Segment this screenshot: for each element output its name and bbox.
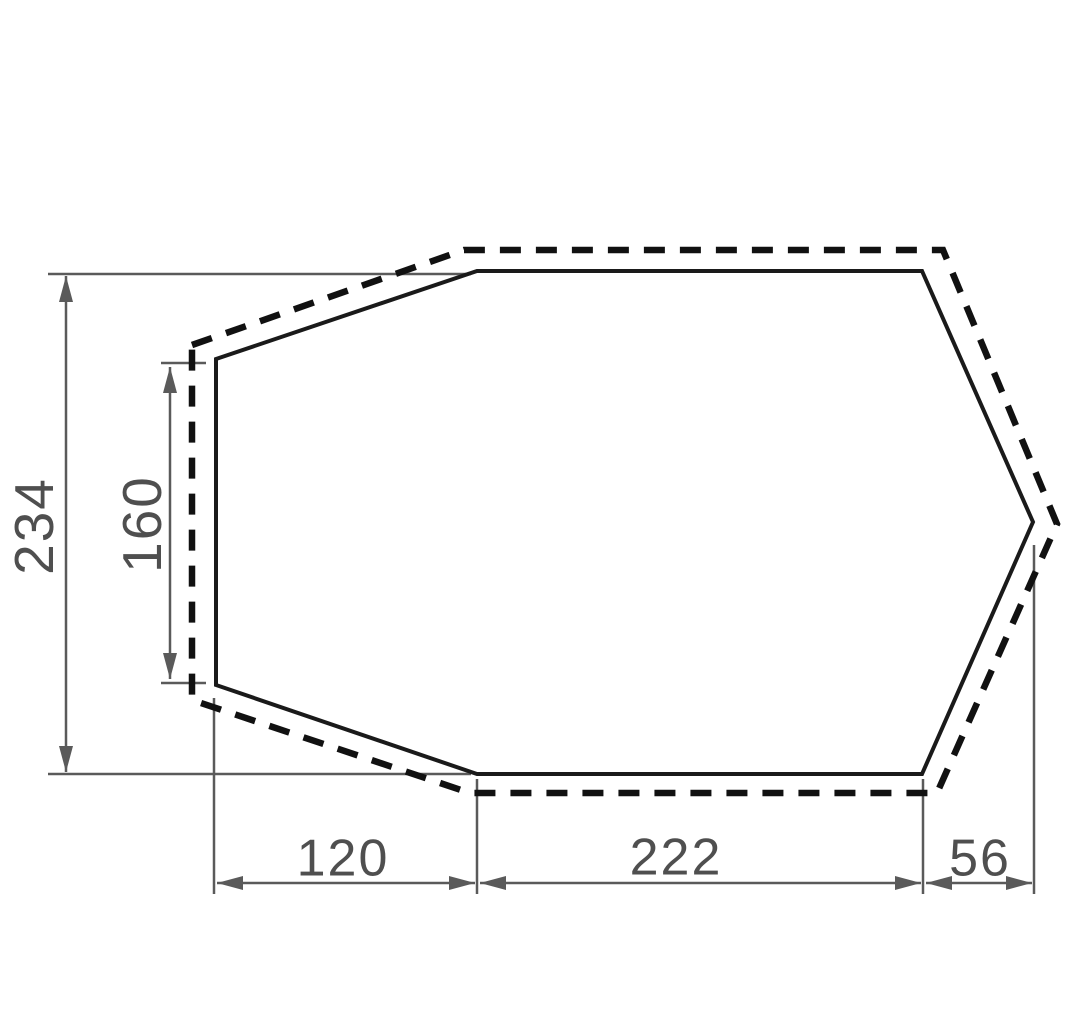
dim-bottom-left-120-label: 120 [297, 830, 390, 888]
dimension-height-234: 234 [3, 274, 471, 774]
dimension-bottom-right-56: 56 [926, 545, 1034, 894]
dim-height-234-label: 234 [3, 477, 65, 575]
dim-bottom-middle-222-arrow-end [895, 876, 921, 890]
dim-height-234-arrow-start [59, 276, 73, 302]
dim-bottom-left-120-arrow-start [217, 876, 243, 890]
dim-bottom-right-56-label: 56 [949, 830, 1011, 888]
solid-outline [216, 271, 1033, 774]
dim-left-edge-160-arrow-start [163, 367, 177, 393]
dim-left-edge-160-label: 160 [111, 475, 173, 573]
dimension-left-edge-160: 160 [111, 363, 206, 683]
dim-bottom-middle-222-arrow-start [480, 876, 506, 890]
dimension-diagram: 23416012022256 [0, 0, 1080, 1034]
dim-bottom-left-120-arrow-end [449, 876, 475, 890]
dashed-outline [192, 250, 1057, 793]
dim-height-234-arrow-end [59, 746, 73, 772]
diagram-svg: 23416012022256 [0, 0, 1080, 1034]
dim-left-edge-160-arrow-end [163, 653, 177, 679]
dim-bottom-middle-222-label: 222 [630, 829, 723, 887]
